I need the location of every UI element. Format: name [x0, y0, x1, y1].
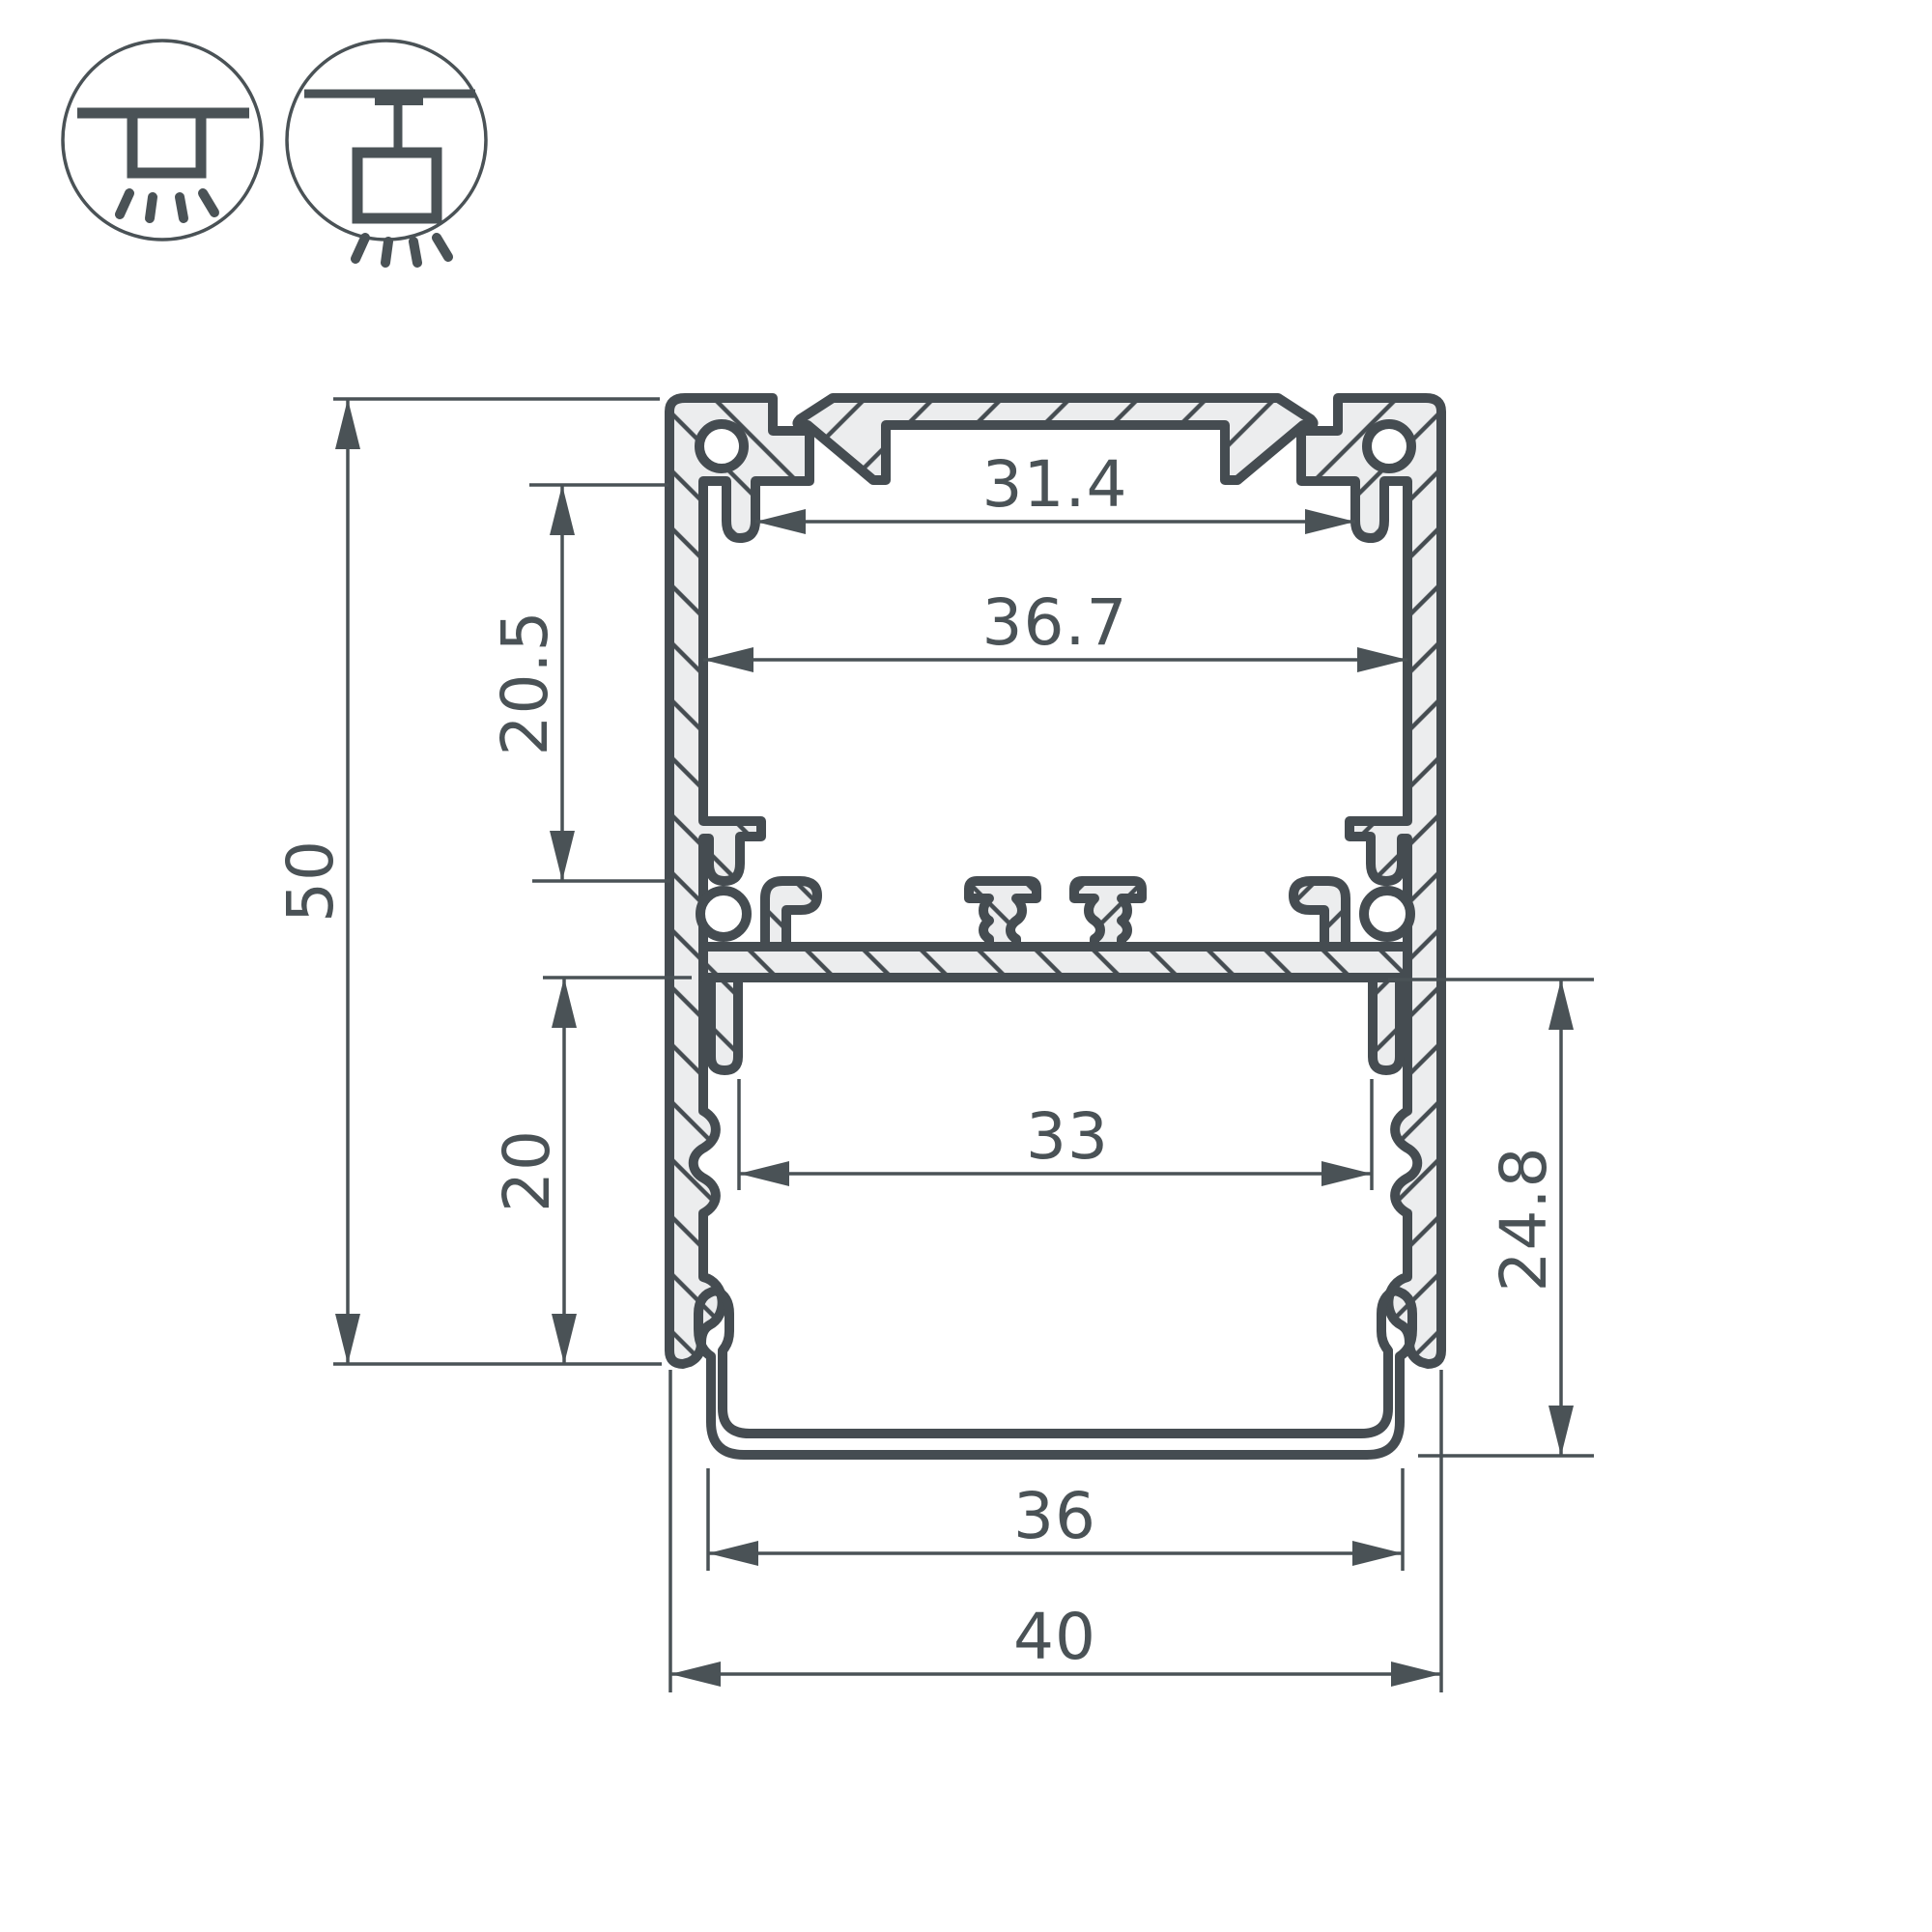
- screw-rib: [1074, 881, 1142, 947]
- dimension-label: 36.7: [982, 585, 1128, 660]
- screw-channel-hole: [1367, 424, 1411, 469]
- screw-channel-hole: [700, 891, 747, 937]
- shelf-hook: [765, 881, 817, 947]
- diffuser-inner-line: [716, 1291, 1395, 1434]
- ceiling-pendant-mount-icon: [287, 41, 486, 263]
- retaining-tab: [711, 978, 738, 1070]
- screw-channel-hole: [1364, 891, 1410, 937]
- dimension-label: 33: [1026, 1099, 1109, 1174]
- light-rays-icon: [355, 238, 448, 263]
- profile-cross-section-drawing: 31.4 36.7 20.5 50: [0, 0, 1932, 1932]
- ceiling-surface-mount-icon: [63, 41, 262, 240]
- shelf-hook: [1293, 881, 1346, 947]
- aluminium-body: [669, 398, 1441, 1364]
- dimension-diffuser-width: 36: [708, 1468, 1403, 1571]
- middle-shelf: [703, 947, 1407, 978]
- dimension-upper-cavity-depth: 20.5: [488, 485, 670, 881]
- dimension-label: 31.4: [982, 447, 1128, 522]
- diffuser: [698, 1291, 1412, 1455]
- screw-channel-hole: [699, 424, 744, 469]
- screw-rib: [969, 881, 1037, 947]
- dimension-label: 50: [273, 839, 348, 923]
- technical-drawing-page: 31.4 36.7 20.5 50: [0, 0, 1932, 1932]
- mount-icons: [63, 41, 486, 263]
- dimension-upper-cavity-width: 36.7: [703, 585, 1407, 672]
- dimension-label: 20.5: [488, 611, 562, 756]
- dimension-label: 24.8: [1487, 1147, 1561, 1293]
- retaining-tab: [1373, 978, 1400, 1070]
- light-rays-icon: [120, 193, 214, 218]
- dimension-lower-cavity-depth: 20: [490, 978, 692, 1364]
- dimension-lower-cavity-width: 33: [739, 1079, 1372, 1190]
- dimension-label: 20: [490, 1129, 564, 1212]
- dimension-label: 40: [1013, 1600, 1096, 1674]
- dimension-label: 36: [1013, 1479, 1096, 1553]
